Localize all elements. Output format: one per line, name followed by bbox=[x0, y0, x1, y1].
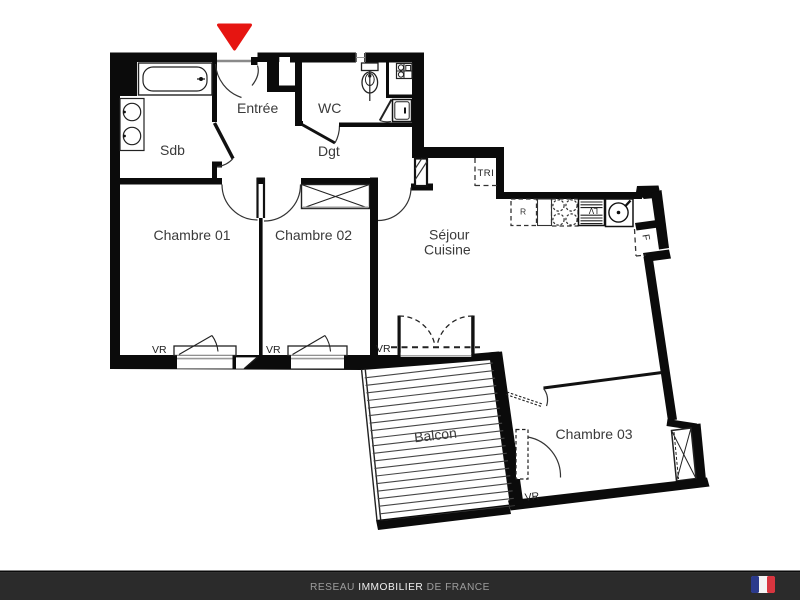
svg-text:VR: VR bbox=[376, 343, 391, 355]
svg-text:WC: WC bbox=[318, 100, 341, 116]
svg-text:Dgt: Dgt bbox=[318, 143, 340, 159]
svg-text:Chambre 01: Chambre 01 bbox=[154, 227, 231, 243]
svg-text:LV: LV bbox=[588, 206, 598, 215]
svg-text:Séjour: Séjour bbox=[429, 227, 470, 243]
svg-text:Entrée: Entrée bbox=[237, 100, 278, 116]
svg-text:VR: VR bbox=[266, 344, 281, 356]
svg-text:R: R bbox=[520, 207, 526, 217]
svg-text:Chambre 03: Chambre 03 bbox=[556, 426, 633, 442]
svg-text:Cuisine: Cuisine bbox=[424, 242, 471, 258]
svg-text:VR: VR bbox=[524, 490, 540, 504]
svg-text:RESEAU IMMOBILIER DE FRANCE: RESEAU IMMOBILIER DE FRANCE bbox=[310, 582, 490, 593]
svg-text:TRI: TRI bbox=[478, 168, 495, 179]
svg-text:Sdb: Sdb bbox=[160, 142, 185, 158]
svg-text:VR: VR bbox=[152, 344, 167, 356]
svg-text:Chambre 02: Chambre 02 bbox=[275, 227, 352, 243]
